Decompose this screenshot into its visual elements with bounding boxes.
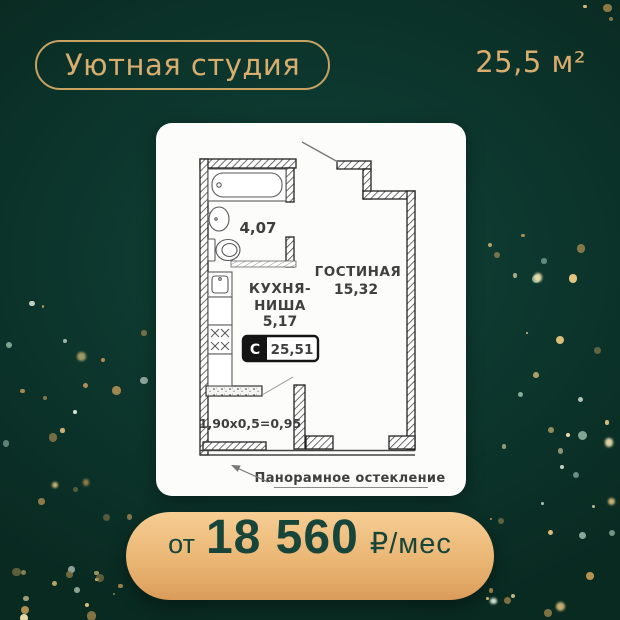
sparkle-dot [63, 339, 67, 343]
sparkle-dot [68, 566, 75, 573]
glazing-arrow-head [231, 465, 241, 472]
panoramic-window [200, 451, 415, 456]
sparkle-dot [20, 614, 28, 620]
ad-card: Уютная студия 25,5 м² [0, 0, 620, 620]
sparkle-dot [29, 301, 35, 307]
sparkle-dot [113, 593, 115, 595]
price-amount: 18 560 [206, 510, 359, 565]
sparkle-dot [521, 234, 524, 237]
sparkle-dot [592, 505, 595, 508]
sparkle-dot [12, 568, 20, 576]
sparkle-dot [21, 606, 29, 614]
price-text: от 18 560 ₽/мес [168, 510, 452, 565]
sparkle-dot [544, 609, 552, 617]
sparkle-dot [498, 518, 504, 524]
balcony-door-line [262, 377, 293, 395]
sparkle-dot [94, 571, 98, 575]
sparkle-dot [605, 420, 610, 425]
sparkle-dot [83, 383, 88, 388]
sparkle-dot [548, 427, 554, 433]
sparkle-dot [609, 530, 615, 536]
sparkle-dot [38, 498, 44, 504]
sparkle-dot [101, 358, 105, 362]
sparkle-dot [526, 332, 528, 334]
sparkle-dot [85, 603, 89, 607]
sparkle-dot [21, 570, 26, 575]
sparkle-dot [141, 330, 146, 335]
sparkle-dot [87, 611, 96, 620]
sparkle-dot [486, 597, 489, 600]
toilet-icon [208, 239, 240, 261]
sparkle-dot [95, 578, 99, 582]
sparkle-dot [594, 347, 601, 354]
sparkle-dot [96, 574, 104, 582]
sparkle-dot [609, 17, 613, 21]
balcony-parapet [206, 386, 262, 396]
living-room-label: ГОСТИНАЯ [315, 264, 402, 280]
sparkle-dot [577, 244, 585, 252]
sparkle-dot [3, 440, 10, 447]
sparkle-dot [541, 502, 544, 505]
sparkle-dot [502, 444, 507, 449]
sparkle-dot [118, 584, 122, 588]
sparkle-dot [83, 479, 90, 486]
kitchen-counter-icon [208, 272, 232, 386]
sparkle-dot [556, 336, 564, 344]
sparkle-dot [504, 597, 511, 604]
sparkle-dot [605, 438, 613, 446]
sink-icon [208, 207, 229, 231]
sparkle-dot [20, 389, 24, 393]
price-prefix: от [168, 529, 195, 560]
sparkle-dot [490, 598, 496, 604]
sparkle-dot [140, 377, 147, 384]
sparkle-dot [60, 428, 64, 432]
sparkle-dot [560, 465, 564, 469]
sparkle-dot [6, 342, 12, 348]
sparkle-dot [73, 487, 78, 492]
sparkle-dot [494, 252, 500, 258]
sparkle-dot [518, 392, 523, 397]
entrance-door-line [302, 142, 338, 162]
sparkle-dot [49, 433, 57, 441]
sparkle-dot [112, 386, 121, 395]
sparkle-dot [566, 433, 570, 437]
sparkle-dot [603, 4, 611, 12]
glazing-label: Панорамное остекление [255, 471, 446, 486]
kitchen-label-line1: КУХНЯ- [249, 281, 311, 297]
sparkle-dot [489, 588, 494, 593]
sparkle-dot [558, 448, 563, 453]
sparkle-dot [77, 352, 85, 360]
sparkle-dot [532, 275, 540, 283]
sparkle-dot [541, 258, 546, 263]
plan-total-area: 25,51 [271, 342, 314, 358]
price-button[interactable]: от 18 560 ₽/мес [126, 512, 494, 600]
sparkle-dot [586, 572, 594, 580]
sparkle-dot [513, 273, 517, 277]
sparkle-dot [548, 530, 553, 535]
sparkle-dot [73, 410, 77, 414]
type-badge-letter: С [250, 342, 260, 358]
sparkle-dot [488, 243, 492, 247]
sparkle-dot [52, 482, 58, 488]
sparkle-dot [103, 514, 110, 521]
sparkle-dot [66, 571, 73, 578]
sparkle-dot [52, 581, 57, 586]
bathroom-area-label: 4,07 [239, 219, 276, 237]
sparkle-dot [490, 518, 492, 520]
title-badge: Уютная студия [35, 40, 330, 90]
sparkle-dot [579, 532, 586, 539]
total-area-label: 25,5 м² [475, 45, 586, 79]
sparkle-dot [569, 274, 578, 283]
sparkle-dot [43, 396, 47, 400]
sparkle-dot [534, 273, 543, 282]
sparkle-dot [127, 514, 132, 519]
sparkle-dot [583, 5, 586, 8]
sparkle-dot [578, 431, 587, 440]
kitchen-area-label: 5,17 [263, 314, 298, 330]
sparkle-dot [42, 305, 44, 307]
floor-plan-card: 4,07 КУХНЯ- НИША 5,17 ГОСТИНАЯ 15,32 С 2… [156, 123, 466, 496]
sparkle-dot [608, 498, 615, 505]
sparkle-dot [23, 596, 28, 601]
sparkle-dot [573, 472, 579, 478]
glazing-annotation: Панорамное остекление [231, 465, 445, 488]
living-room-area-label: 15,32 [334, 282, 378, 298]
sparkle-dot [74, 587, 80, 593]
sparkle-dot [511, 594, 515, 598]
floor-plan-drawing: 4,07 КУХНЯ- НИША 5,17 ГОСТИНАЯ 15,32 С 2… [156, 123, 466, 496]
sparkle-dot [578, 397, 584, 403]
price-unit: ₽/мес [370, 526, 452, 561]
apartment-type-badge: С 25,51 [243, 336, 318, 361]
balcony-dimensions-label: 1,90х0,5=0,95 [199, 416, 301, 431]
sparkle-dot [556, 602, 565, 611]
bathtub-icon [208, 169, 286, 201]
sparkle-dot [533, 372, 539, 378]
kitchen-label-line2: НИША [254, 298, 306, 314]
title-badge-label: Уютная студия [65, 48, 300, 82]
